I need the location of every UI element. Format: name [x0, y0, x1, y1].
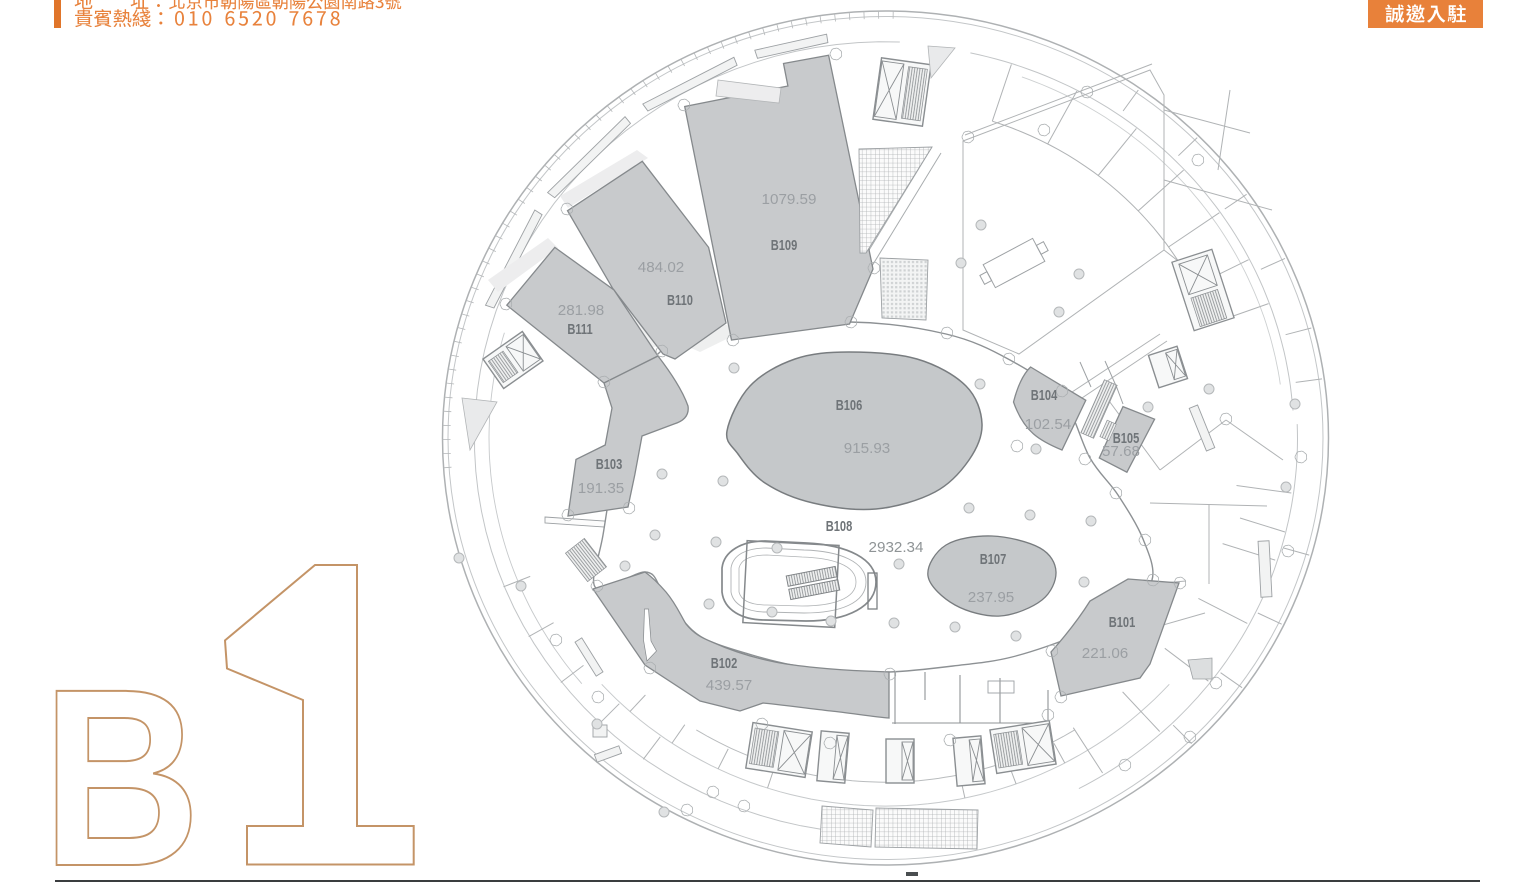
svg-text:B: B — [42, 637, 201, 886]
